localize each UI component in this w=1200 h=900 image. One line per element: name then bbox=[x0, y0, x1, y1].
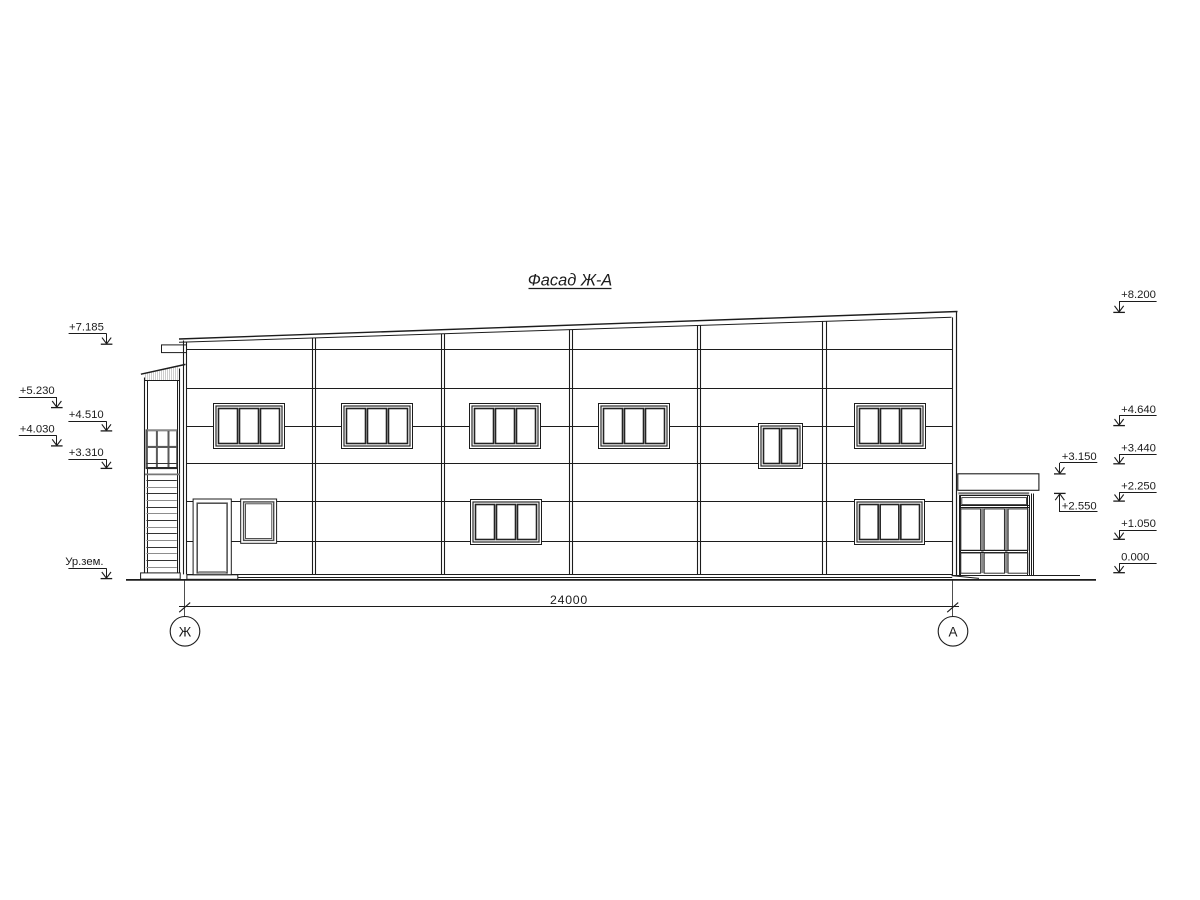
svg-text:0.000: 0.000 bbox=[1121, 552, 1149, 564]
svg-text:Ур.зем.: Ур.зем. bbox=[65, 556, 103, 568]
svg-text:А: А bbox=[948, 624, 957, 639]
svg-text:24000: 24000 bbox=[550, 593, 588, 607]
svg-text:+2.550: +2.550 bbox=[1062, 500, 1097, 512]
svg-text:+1.050: +1.050 bbox=[1121, 518, 1156, 530]
svg-text:+2.250: +2.250 bbox=[1121, 481, 1156, 493]
svg-text:+4.640: +4.640 bbox=[1121, 404, 1156, 416]
svg-text:+4.030: +4.030 bbox=[20, 424, 55, 436]
svg-text:Ж: Ж bbox=[179, 624, 192, 639]
svg-text:+3.310: +3.310 bbox=[69, 447, 104, 459]
svg-text:Фасад Ж-А: Фасад Ж-А bbox=[528, 272, 613, 290]
svg-text:+8.200: +8.200 bbox=[1121, 289, 1156, 301]
svg-text:+7.185: +7.185 bbox=[69, 321, 104, 333]
svg-text:+5.230: +5.230 bbox=[20, 385, 55, 397]
svg-text:+3.440: +3.440 bbox=[1121, 442, 1156, 454]
svg-text:+4.510: +4.510 bbox=[69, 409, 104, 421]
svg-text:+3.150: +3.150 bbox=[1062, 451, 1097, 463]
